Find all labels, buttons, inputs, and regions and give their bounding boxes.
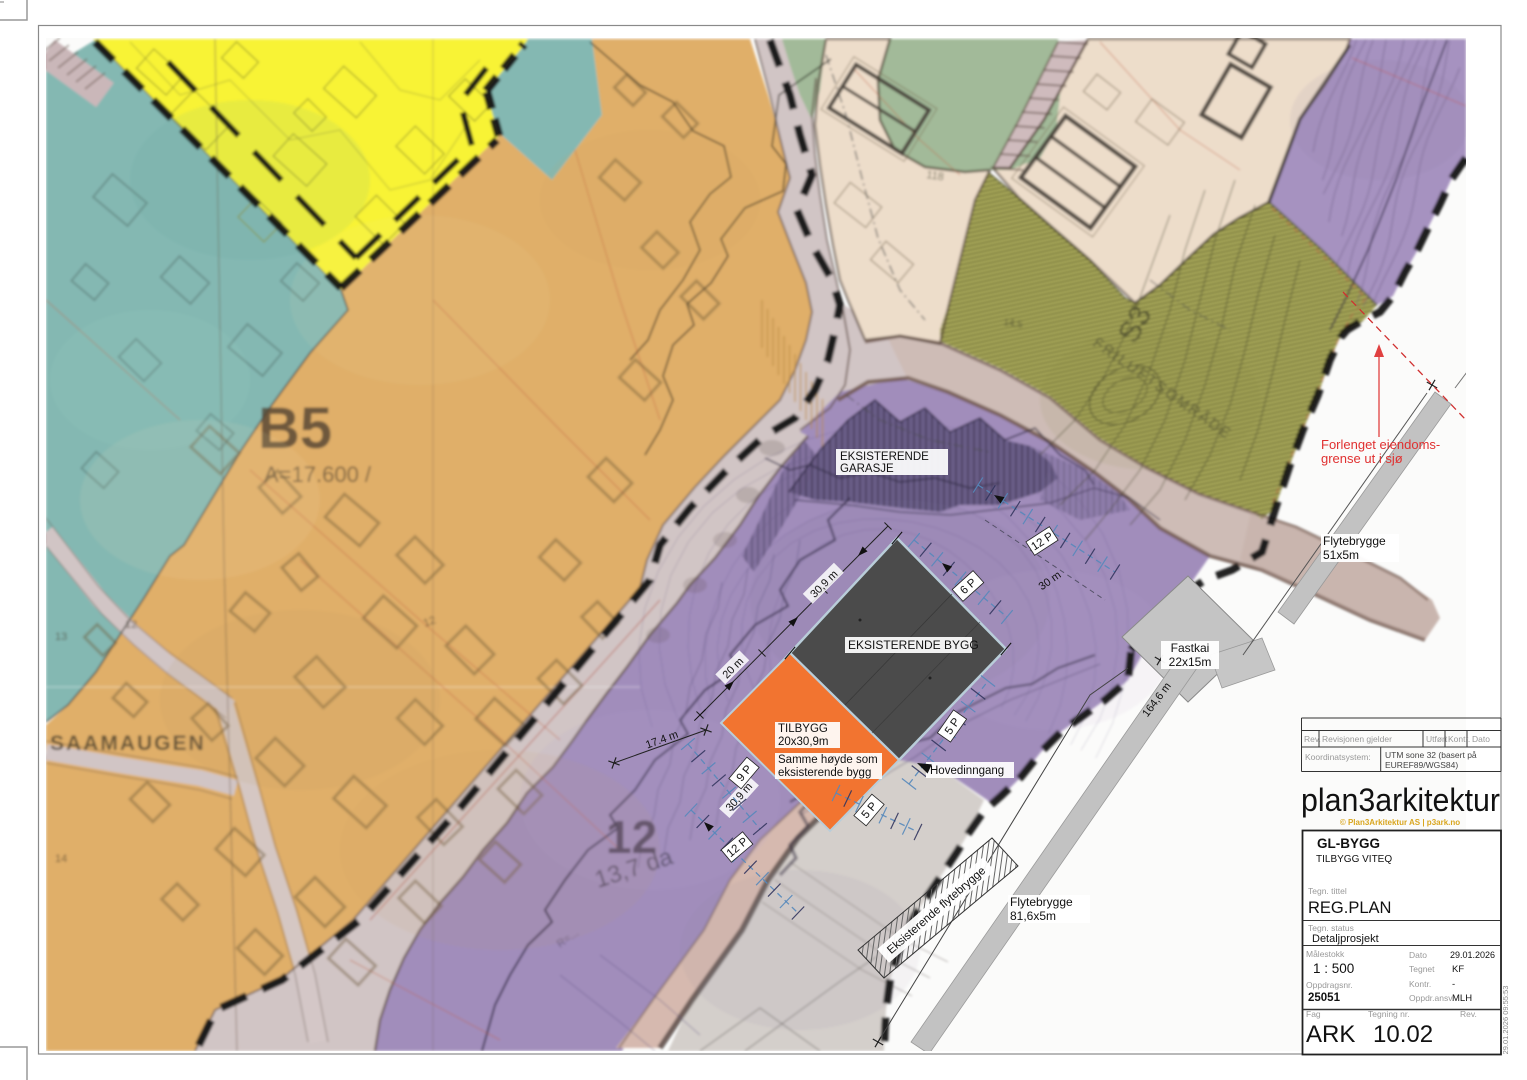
svg-text:Forlenget eiendoms-: Forlenget eiendoms- <box>1321 437 1440 452</box>
svg-text:KF: KF <box>1452 964 1464 975</box>
svg-text:Flytebrygge: Flytebrygge <box>1323 534 1386 548</box>
svg-text:Målestokk: Målestokk <box>1306 949 1345 959</box>
svg-text:29.01.2026: 29.01.2026 <box>1450 950 1495 960</box>
svg-text:GL-BYGG: GL-BYGG <box>1317 836 1380 851</box>
svg-text:Koordinatsystem:: Koordinatsystem: <box>1305 752 1371 762</box>
svg-text:GARASJE: GARASJE <box>840 463 894 475</box>
svg-text:10.02: 10.02 <box>1373 1021 1433 1048</box>
svg-text:EKSISTERENDE BYGG: EKSISTERENDE BYGG <box>848 638 979 652</box>
svg-text:Tegn. status: Tegn. status <box>1308 923 1354 933</box>
svg-text:25051: 25051 <box>1308 992 1341 1004</box>
svg-text:22x15m: 22x15m <box>1169 655 1212 669</box>
svg-text:MLH: MLH <box>1452 993 1472 1004</box>
svg-text:ARK: ARK <box>1306 1021 1355 1048</box>
svg-text:Fastkai: Fastkai <box>1171 641 1210 655</box>
svg-text:EKSISTERENDE: EKSISTERENDE <box>840 451 929 463</box>
svg-text:81,6x5m: 81,6x5m <box>1010 909 1056 923</box>
svg-text:20x30,9m: 20x30,9m <box>778 736 829 748</box>
svg-text:Dato: Dato <box>1472 734 1490 744</box>
svg-text:Detaljprosjekt: Detaljprosjekt <box>1312 933 1379 945</box>
svg-text:Kontr.: Kontr. <box>1448 734 1470 744</box>
svg-text:1 : 500: 1 : 500 <box>1313 961 1354 976</box>
svg-text:Flytebrygge: Flytebrygge <box>1010 895 1073 909</box>
svg-text:TILBYGG VITEQ: TILBYGG VITEQ <box>1316 854 1392 865</box>
svg-text:Fag: Fag <box>1306 1009 1321 1019</box>
svg-text:Hovedinngang: Hovedinngang <box>930 765 1004 777</box>
svg-text:Rev.: Rev. <box>1460 1009 1477 1019</box>
svg-text:REG.PLAN: REG.PLAN <box>1308 899 1391 917</box>
svg-text:Kontr.: Kontr. <box>1409 979 1431 989</box>
svg-text:Oppdragsnr.: Oppdragsnr. <box>1306 980 1353 990</box>
svg-text:EUREF89/WGS84): EUREF89/WGS84) <box>1385 760 1458 770</box>
svg-text:Tegning nr.: Tegning nr. <box>1368 1009 1410 1019</box>
svg-text:Tegn. tittel: Tegn. tittel <box>1308 886 1347 896</box>
svg-text:Oppdr.ansv.: Oppdr.ansv. <box>1409 993 1454 1003</box>
svg-text:Utført: Utført <box>1426 734 1448 744</box>
svg-text:29.01.2026 09:55:53: 29.01.2026 09:55:53 <box>1501 986 1510 1055</box>
svg-text:© Plan3Arkitektur AS | p3ark.n: © Plan3Arkitektur AS | p3ark.no <box>1340 818 1460 827</box>
svg-text:plan3arkitektur: plan3arkitektur <box>1301 782 1500 818</box>
svg-text:Samme høyde som: Samme høyde som <box>778 754 878 766</box>
svg-text:Tegnet: Tegnet <box>1409 964 1435 974</box>
svg-text:Rev.: Rev. <box>1304 734 1321 744</box>
svg-text:UTM sone 32 (basert på: UTM sone 32 (basert på <box>1385 750 1477 760</box>
svg-text:-: - <box>1452 979 1455 990</box>
svg-text:51x5m: 51x5m <box>1323 548 1359 562</box>
svg-text:Dato: Dato <box>1409 950 1427 960</box>
svg-text:Revisjonen gjelder: Revisjonen gjelder <box>1322 734 1392 744</box>
svg-text:TILBYGG: TILBYGG <box>778 723 828 735</box>
svg-text:grense ut i sjø: grense ut i sjø <box>1321 451 1403 466</box>
svg-text:eksisterende bygg: eksisterende bygg <box>778 767 871 779</box>
